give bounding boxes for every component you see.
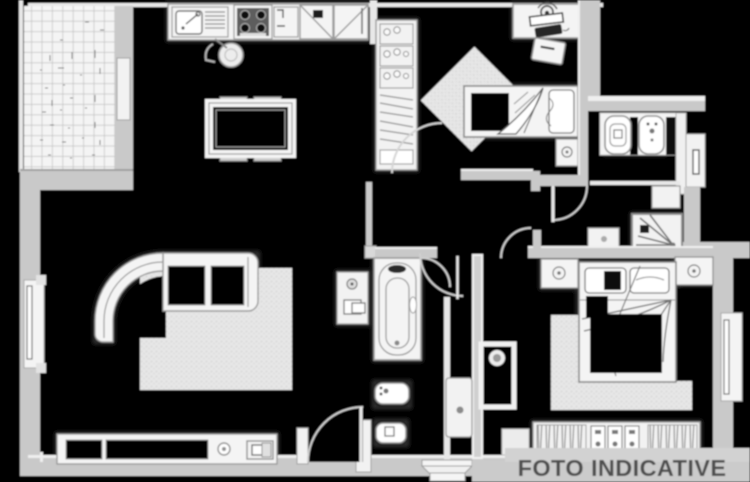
svg-text:FOTO INDICATIVE: FOTO INDICATIVE — [518, 455, 727, 481]
